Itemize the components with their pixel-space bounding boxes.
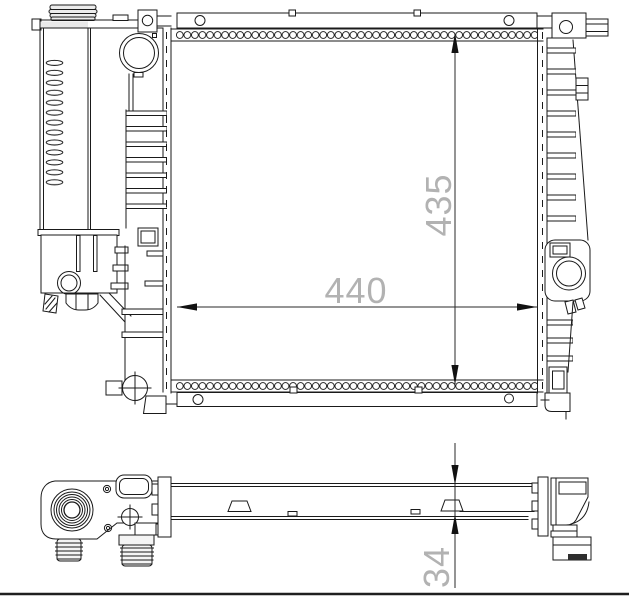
cooling-fins — [45, 58, 64, 188]
tube-row-bottom — [176, 380, 537, 392]
end-plate-left — [158, 477, 171, 537]
arrow-right-icon — [517, 303, 537, 310]
top-bump — [113, 15, 128, 21]
lower-hose-port — [58, 272, 81, 295]
radiator-drawing-canvas: 435 440 — [0, 0, 629, 600]
side-boss — [576, 78, 588, 100]
left-end-cap — [41, 475, 171, 566]
right-end-cap — [532, 477, 591, 560]
upper-hose-port — [120, 34, 159, 78]
bottom-header-plate — [177, 393, 537, 407]
dim-depth-label: 34 — [416, 546, 457, 588]
radiator-technical-drawing: 435 440 — [0, 0, 629, 600]
drain-stub-hatched — [43, 294, 58, 313]
left-tank — [32, 5, 176, 414]
drain-cross-screw — [106, 372, 151, 404]
hex-fitting — [66, 294, 98, 310]
right-foot — [545, 393, 570, 412]
bottom-view: 34 — [41, 443, 591, 588]
bracket-hole-left — [142, 15, 152, 25]
top-header-plate — [177, 13, 537, 28]
dim-core-height: 435 — [418, 33, 459, 385]
filler-neck-threads — [49, 5, 97, 21]
right-tank-ribs — [547, 46, 576, 235]
front-view: 435 440 — [32, 5, 608, 419]
oval-port — [116, 475, 152, 498]
ladder-ribs — [126, 110, 167, 219]
core-tab — [228, 501, 251, 512]
left-foot — [144, 396, 167, 414]
dim-core-width: 440 — [177, 270, 537, 311]
dim-width-label: 440 — [324, 270, 387, 311]
end-plate-right — [538, 477, 548, 536]
threaded-connector-small — [56, 539, 83, 561]
threaded-connector-large — [119, 535, 154, 566]
radiator-core — [167, 10, 544, 407]
arrow-down-icon — [451, 465, 458, 485]
dim-core-depth: 34 — [416, 443, 459, 588]
dim-height-label: 435 — [418, 173, 459, 236]
core-tab — [441, 500, 463, 511]
right-tank — [537, 13, 608, 419]
bracket-hole-right — [560, 21, 573, 34]
tube-row-top — [176, 29, 537, 41]
core-plan — [171, 484, 538, 520]
hose-port-right — [545, 240, 590, 314]
arrow-left-icon — [177, 303, 197, 310]
